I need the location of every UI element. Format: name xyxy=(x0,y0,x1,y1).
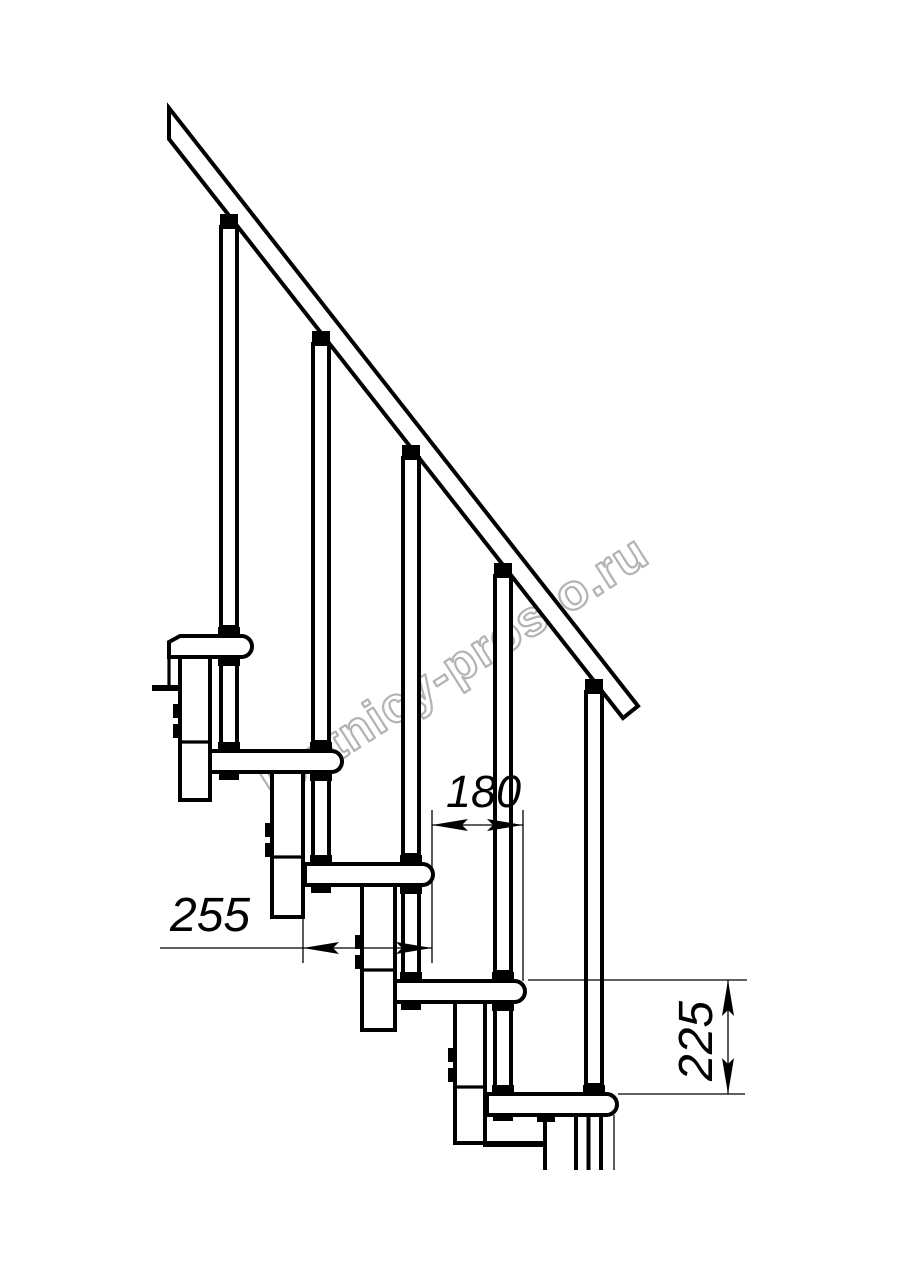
bolt-tab xyxy=(173,724,182,738)
dimension-label-225: 225 xyxy=(670,1001,723,1082)
baluster xyxy=(313,344,329,742)
stringer-module xyxy=(180,657,210,800)
tread xyxy=(487,1094,617,1115)
bolt-tab xyxy=(355,935,364,949)
tread xyxy=(305,864,433,885)
baluster xyxy=(221,227,237,627)
post xyxy=(403,885,419,981)
staircase-technical-drawing: lestnicy-prosto.ru xyxy=(0,0,914,1280)
bolt-tab xyxy=(448,1068,457,1082)
bolt-tab xyxy=(173,704,182,718)
bolt-tab xyxy=(448,1048,457,1062)
drawing-canvas: lestnicy-prosto.ru xyxy=(0,0,914,1280)
dimension-label-255: 255 xyxy=(169,889,250,942)
stringer-module xyxy=(272,772,303,917)
tread xyxy=(169,636,252,657)
stringer-module xyxy=(362,885,395,1030)
dimension-label-180: 180 xyxy=(446,766,521,817)
tread xyxy=(210,751,342,772)
bolt-tab xyxy=(265,843,274,857)
baluster xyxy=(403,458,419,855)
support-clip xyxy=(537,1113,555,1122)
post xyxy=(221,657,237,751)
bracket-bar xyxy=(152,685,182,691)
baluster xyxy=(586,692,602,1085)
bolt-tab xyxy=(355,955,364,969)
tread xyxy=(395,981,525,1002)
post xyxy=(313,772,329,864)
post xyxy=(495,1002,511,1094)
stringer-module xyxy=(455,1002,485,1143)
column-foot-plate xyxy=(483,1141,545,1147)
bolt-tab xyxy=(265,823,274,837)
